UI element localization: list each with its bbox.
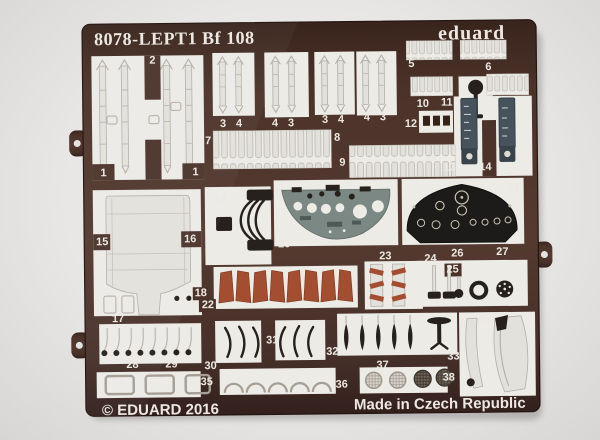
pe-fret-illustration: 8078-LEPT1 Bf 108 eduard © EDUARD 2016 M… — [0, 0, 600, 440]
part-number-label: 14 — [479, 161, 492, 173]
part-number-label: 4 — [364, 111, 371, 123]
part-number-label: 18 — [195, 287, 207, 299]
part-number-label: 11 — [441, 97, 453, 109]
part-number-label: 37 — [376, 359, 388, 371]
part-number-label: 22 — [202, 299, 214, 311]
part-number-label: 4 — [338, 114, 345, 126]
part-number-label: 8 — [334, 132, 340, 144]
part-number-label: 3 — [322, 114, 328, 126]
part-number-label: 21 — [508, 182, 520, 194]
part-number-label: 10 — [417, 98, 429, 110]
part-number-label: 26 — [451, 247, 463, 259]
part-number-label: 32 — [326, 346, 338, 358]
part-number-label: 29 — [165, 358, 177, 370]
part-number-label: 23 — [379, 250, 391, 262]
part-number-label: 30 — [204, 360, 216, 372]
part-number-label: 12 — [405, 118, 417, 130]
part-number-label: 33 — [447, 350, 459, 362]
part-number-label: 25 — [446, 263, 458, 275]
part-number-label: 31 — [266, 334, 278, 346]
part-number-label: 5 — [408, 58, 414, 70]
product-photo: 8078-LEPT1 Bf 108 eduard © EDUARD 2016 M… — [0, 0, 600, 440]
part-number-label: 4 — [272, 117, 279, 129]
pe-fret-sheet: 8078-LEPT1 Bf 108 eduard © EDUARD 2016 M… — [68, 19, 554, 419]
part-number-label: 20 — [278, 238, 290, 250]
part-number-label: 3 — [380, 111, 386, 123]
part-number-label: 24 — [424, 253, 437, 265]
origin-text: Made in Czech Republic — [354, 395, 526, 414]
part-number-label: 35 — [201, 376, 213, 388]
part-number-label: 27 — [496, 246, 508, 258]
part-number-label: 36 — [336, 379, 348, 391]
brand-logo: eduard — [438, 22, 505, 45]
part-number-label: 6 — [485, 61, 491, 73]
part-number-label: 9 — [339, 157, 345, 169]
part-number-label: 3 — [288, 117, 294, 129]
part-12-strip — [423, 116, 450, 126]
part-number-label: 13 — [443, 161, 455, 173]
part-number-label: 34 — [478, 315, 491, 327]
part-number-label: 38 — [442, 372, 454, 384]
